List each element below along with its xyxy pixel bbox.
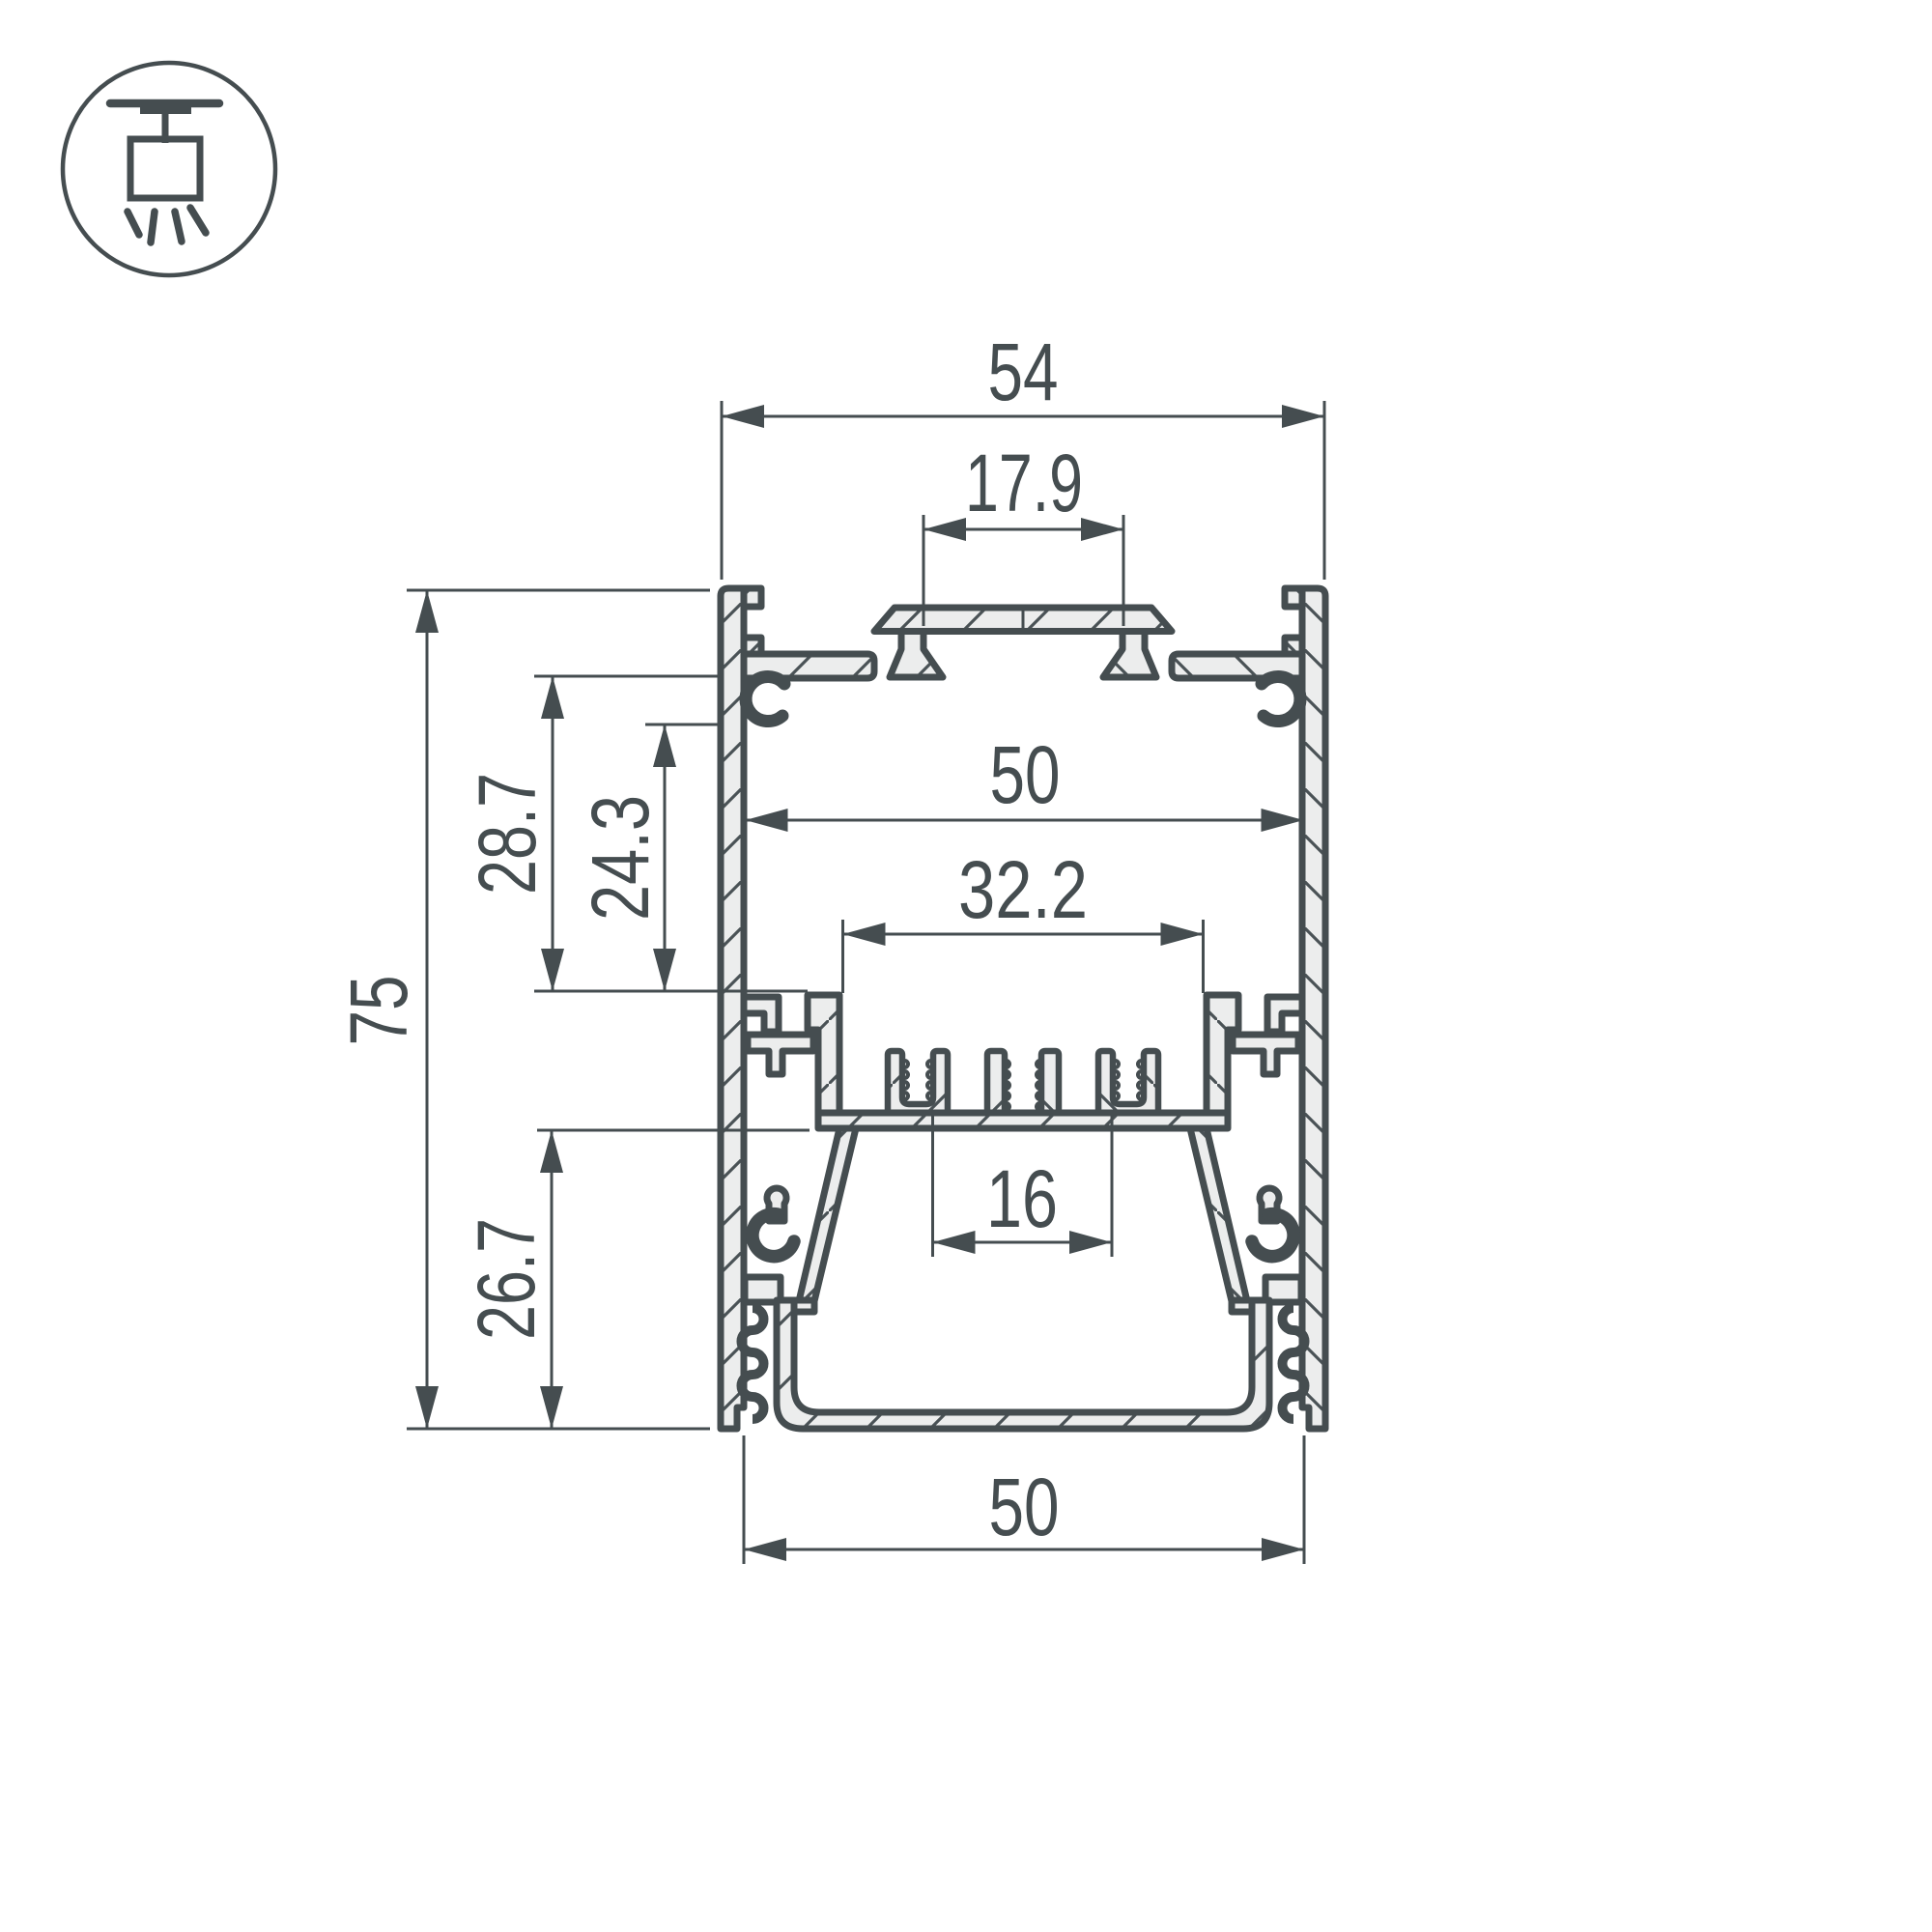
svg-text:17.9: 17.9 [965, 438, 1083, 528]
svg-text:75: 75 [333, 976, 424, 1046]
svg-text:50: 50 [989, 1462, 1060, 1552]
svg-text:28.7: 28.7 [462, 773, 553, 895]
svg-text:16: 16 [986, 1153, 1058, 1244]
svg-text:54: 54 [988, 327, 1059, 417]
svg-text:26.7: 26.7 [461, 1218, 552, 1340]
svg-text:50: 50 [990, 729, 1061, 820]
svg-text:24.3: 24.3 [575, 795, 666, 921]
svg-text:32.2: 32.2 [958, 844, 1088, 935]
